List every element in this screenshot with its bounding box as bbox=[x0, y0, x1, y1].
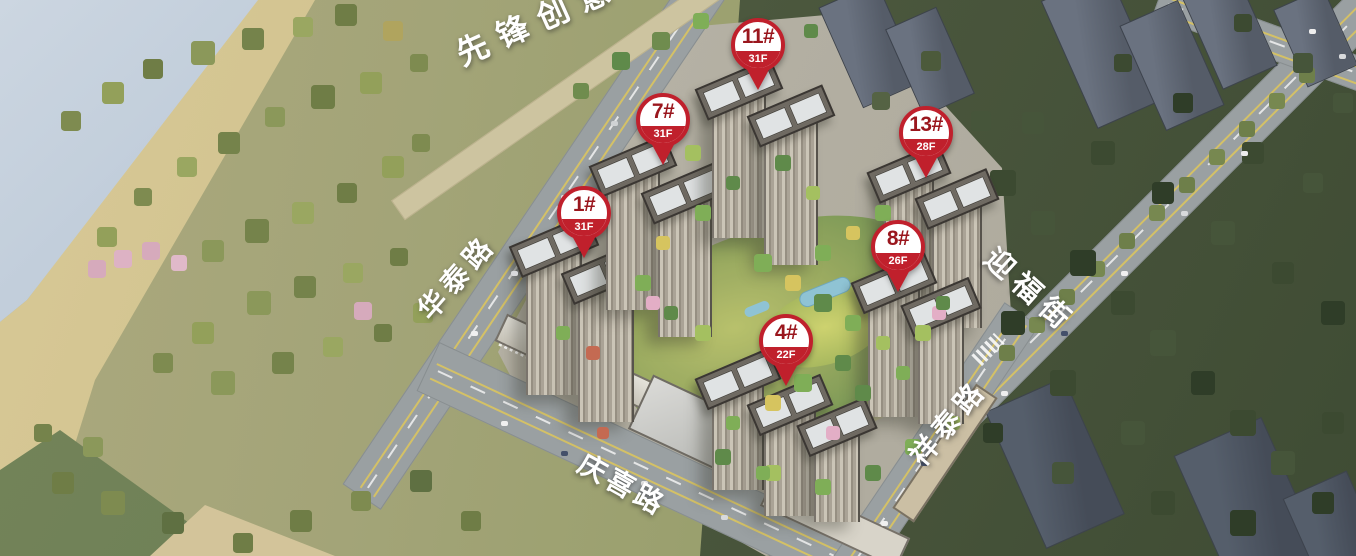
building-floors: 31F bbox=[735, 51, 781, 68]
building-number: 11# bbox=[735, 22, 781, 51]
building-floors: 28F bbox=[903, 139, 949, 156]
building-floors: 22F bbox=[763, 347, 809, 364]
roof-unit bbox=[835, 405, 870, 437]
building-pin-1[interactable]: 1# 31F bbox=[556, 186, 612, 258]
pin-bubble: 8# 26F bbox=[871, 220, 925, 274]
roof-unit bbox=[922, 190, 959, 222]
roof-unit bbox=[702, 370, 740, 403]
tower-4-c bbox=[814, 426, 860, 522]
building-number: 13# bbox=[903, 110, 949, 139]
roof-unit bbox=[517, 237, 557, 271]
tower-7-a bbox=[606, 165, 660, 310]
pin-bubble: 1# 31F bbox=[557, 186, 611, 240]
pin-bubble: 4# 22F bbox=[759, 314, 813, 368]
site-aerial-map: 先锋创意 华泰路 迎福街 庆喜路 祥泰路 1# 31F 4# 22F 7# 31… bbox=[0, 0, 1356, 556]
pin-bubble: 11# 31F bbox=[731, 18, 785, 72]
building-floors: 26F bbox=[875, 253, 921, 270]
building-pin-4[interactable]: 4# 22F bbox=[758, 314, 814, 386]
tower-7-b bbox=[658, 192, 712, 337]
roof-unit bbox=[648, 184, 687, 217]
roof-unit bbox=[908, 298, 943, 330]
pin-bubble: 13# 28F bbox=[899, 106, 953, 160]
roof-unit bbox=[754, 107, 793, 140]
building-number: 7# bbox=[640, 97, 686, 126]
building-pin-8[interactable]: 8# 26F bbox=[870, 220, 926, 292]
roof-unit bbox=[569, 264, 609, 298]
pin-bubble: 7# 31F bbox=[636, 93, 690, 147]
street-cars bbox=[0, 0, 5, 3]
tower-11-b bbox=[764, 115, 818, 265]
roof-unit bbox=[788, 382, 826, 415]
roof-unit bbox=[939, 285, 974, 317]
building-floors: 31F bbox=[640, 126, 686, 143]
roof-unit bbox=[789, 92, 828, 125]
building-pin-11[interactable]: 11# 31F bbox=[730, 18, 786, 90]
roof-unit bbox=[754, 396, 792, 429]
building-pin-13[interactable]: 13# 28F bbox=[898, 106, 954, 178]
roof-unit bbox=[804, 418, 839, 450]
building-number: 1# bbox=[561, 190, 607, 219]
building-number: 4# bbox=[763, 318, 809, 347]
building-number: 8# bbox=[875, 224, 921, 253]
building-pin-7[interactable]: 7# 31F bbox=[635, 93, 691, 165]
roof-unit bbox=[955, 176, 992, 208]
roof-unit bbox=[596, 157, 635, 190]
building-floors: 31F bbox=[561, 219, 607, 236]
tower-4-a bbox=[712, 378, 764, 490]
